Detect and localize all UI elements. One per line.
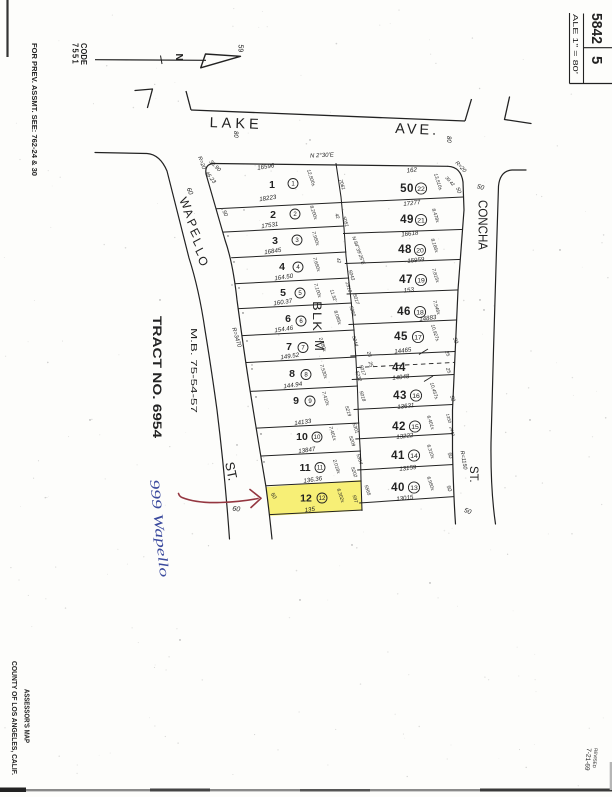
svg-text:11: 11 (299, 462, 310, 474)
svg-text:10: 10 (296, 431, 308, 443)
svg-text:BLK: BLK (310, 301, 324, 332)
svg-text:14: 14 (410, 453, 418, 460)
svg-text:16: 16 (412, 393, 420, 400)
svg-text:7: 7 (286, 341, 292, 353)
svg-text:60: 60 (232, 506, 241, 514)
svg-text:COUNTY OF LOS ANGELES, CALIF.: COUNTY OF LOS ANGELES, CALIF. (10, 661, 19, 775)
svg-text:49: 49 (400, 214, 414, 226)
svg-text:TRACT NO. 6954: TRACT NO. 6954 (150, 316, 164, 438)
svg-text:5842: 5842 (588, 13, 605, 44)
svg-text:ALE 1" = 80’: ALE 1" = 80’ (571, 14, 578, 75)
svg-text:M.B. 75-54-57: M.B. 75-54-57 (189, 328, 199, 413)
svg-text:17: 17 (414, 334, 422, 341)
svg-text:ASSESSOR'S MAP: ASSESSOR'S MAP (23, 689, 30, 743)
svg-text:6: 6 (285, 313, 291, 325)
svg-text:10: 10 (314, 434, 321, 441)
svg-text:N: N (173, 54, 184, 61)
svg-text:80: 80 (232, 131, 238, 138)
svg-text:46: 46 (397, 306, 411, 318)
svg-text:7551: 7551 (71, 43, 81, 65)
svg-text:5: 5 (280, 287, 286, 299)
svg-text:3: 3 (272, 235, 278, 247)
svg-text:47: 47 (399, 274, 413, 286)
svg-text:40: 40 (391, 482, 405, 494)
svg-text:19: 19 (417, 277, 425, 284)
svg-text:9: 9 (293, 395, 299, 407)
svg-text:45: 45 (394, 331, 408, 343)
svg-text:2: 2 (270, 209, 276, 221)
svg-text:1: 1 (269, 179, 275, 191)
svg-text:8: 8 (289, 368, 295, 380)
svg-text:59: 59 (237, 45, 244, 53)
svg-text:48: 48 (398, 244, 412, 256)
svg-text:15: 15 (411, 424, 419, 431)
svg-text:13: 13 (410, 485, 418, 492)
svg-text:ST.: ST. (467, 466, 479, 483)
svg-text:5: 5 (588, 56, 605, 64)
svg-text:43: 43 (393, 390, 407, 402)
svg-text:21: 21 (417, 217, 425, 224)
svg-text:80: 80 (445, 136, 451, 143)
svg-text:12: 12 (300, 493, 312, 505)
svg-text:162: 162 (406, 166, 418, 174)
svg-text:20: 20 (416, 247, 424, 254)
svg-text:22: 22 (417, 186, 425, 193)
svg-text:AVE.: AVE. (395, 121, 440, 139)
svg-text:50: 50 (400, 183, 414, 195)
svg-text:12: 12 (319, 495, 326, 502)
svg-text:FOR PREV. ASSMT. SEE: 762-24: FOR PREV. ASSMT. SEE: 762-24 & 30 (30, 43, 39, 176)
svg-text:4: 4 (279, 261, 285, 273)
svg-text:CONCHA: CONCHA (476, 200, 491, 250)
svg-text:135: 135 (304, 506, 316, 514)
svg-text:41: 41 (391, 450, 405, 462)
svg-text:44: 44 (392, 362, 406, 374)
svg-text:42: 42 (392, 421, 406, 433)
svg-text:11: 11 (317, 465, 324, 472)
svg-text:153: 153 (403, 286, 415, 294)
